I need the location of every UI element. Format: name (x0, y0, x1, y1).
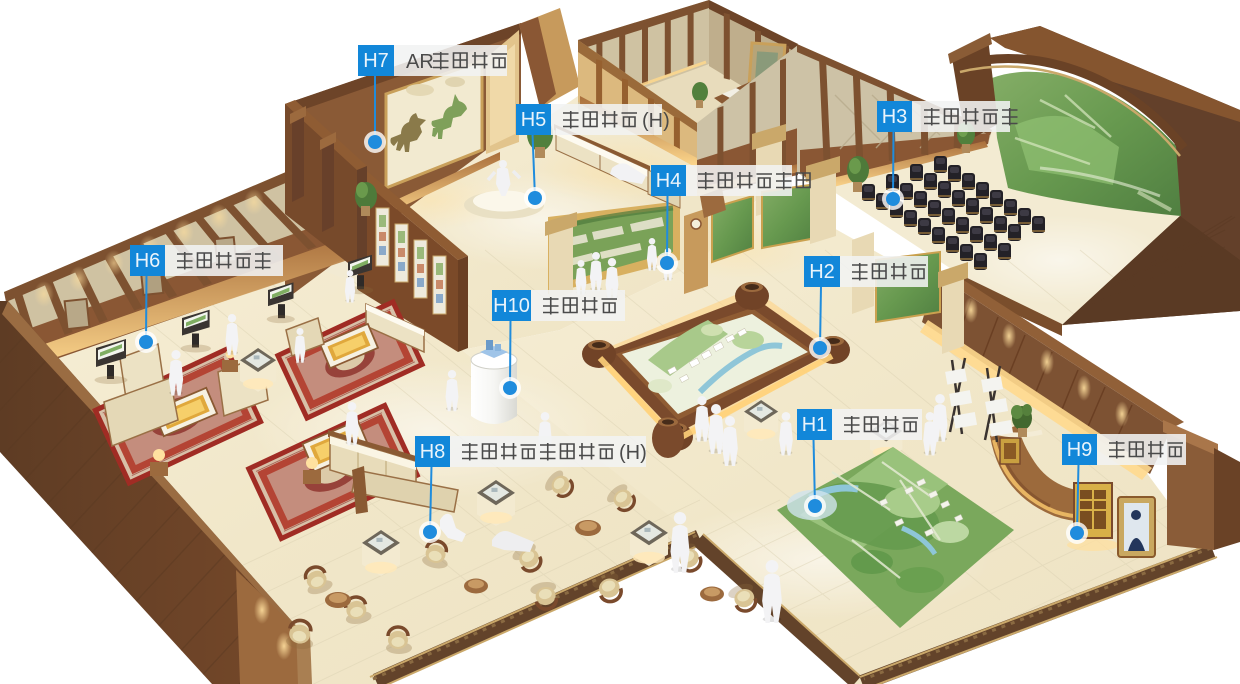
svg-text:H10: H10 (493, 295, 530, 317)
svg-text:H8: H8 (420, 441, 446, 463)
svg-text:H1: H1 (802, 414, 828, 436)
svg-text:H6: H6 (135, 250, 161, 272)
svg-text:(H): (H) (619, 442, 647, 464)
svg-text:H5: H5 (521, 109, 547, 131)
svg-text:AR: AR (406, 51, 434, 73)
svg-text:H7: H7 (363, 50, 389, 72)
svg-text:H4: H4 (656, 170, 682, 192)
svg-text:H2: H2 (809, 261, 835, 283)
svg-text:H9: H9 (1067, 439, 1093, 461)
svg-text:(H): (H) (642, 110, 670, 132)
svg-text:H3: H3 (882, 106, 908, 128)
